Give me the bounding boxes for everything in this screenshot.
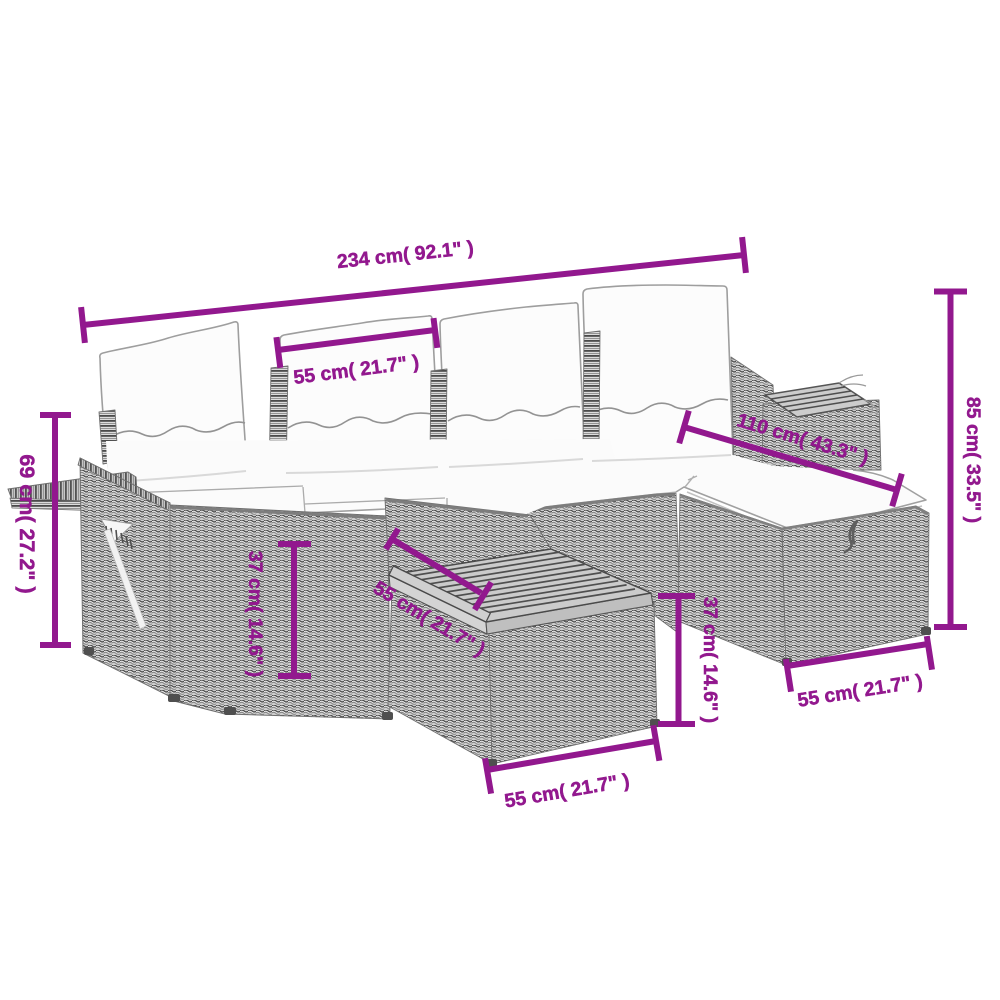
svg-text:37 cm( 14.6" ): 37 cm( 14.6" ) bbox=[699, 597, 721, 723]
svg-text:37 cm( 14.6" ): 37 cm( 14.6" ) bbox=[244, 551, 266, 677]
svg-text:85 cm( 33.5" ): 85 cm( 33.5" ) bbox=[962, 397, 984, 523]
svg-text:69 cm( 27.2" ): 69 cm( 27.2" ) bbox=[15, 454, 39, 593]
